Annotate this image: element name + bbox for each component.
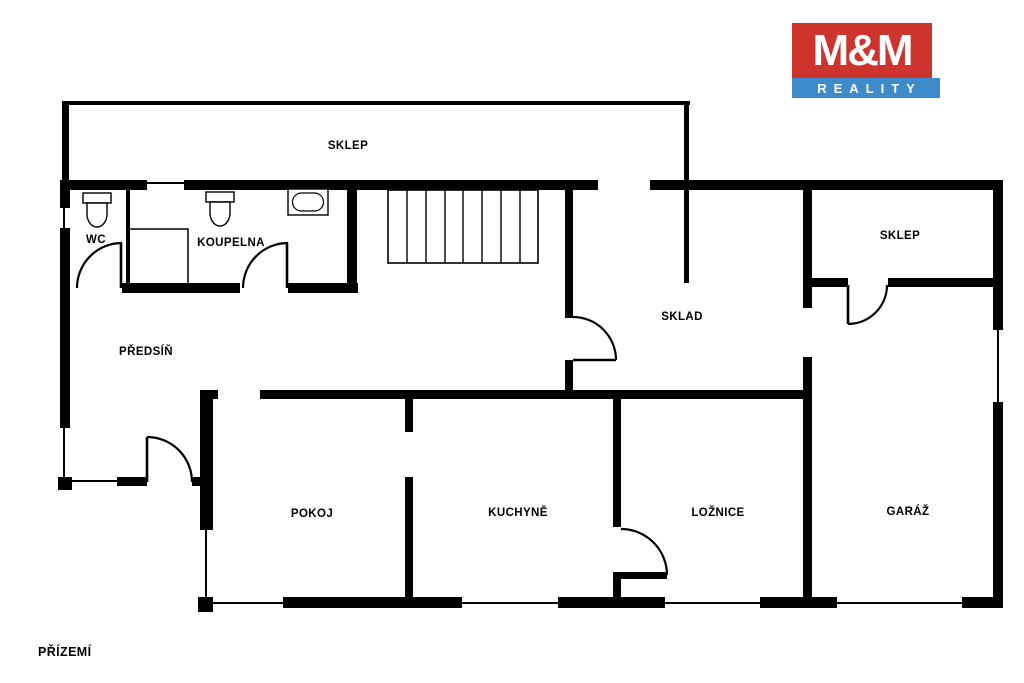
window	[837, 602, 962, 604]
window	[70, 480, 117, 482]
loznice-door-swing-arc	[621, 529, 667, 575]
wall-light	[62, 101, 69, 180]
toilet-icon	[87, 203, 107, 227]
floor-level-label: PŘÍZEMÍ	[38, 645, 92, 659]
predsin-door-swing-arc	[147, 437, 192, 482]
wall	[200, 390, 213, 530]
koupelna-door-swing-arc	[243, 243, 288, 288]
room-label-predsin: PŘEDSÍŇ	[119, 346, 173, 358]
wall	[558, 597, 665, 608]
room-label-pokoj: POKOJ	[291, 508, 333, 520]
room-label-koupelna: KOUPELNA	[197, 237, 265, 249]
wall	[60, 180, 147, 190]
logo-reality-banner: REALITY	[792, 78, 940, 98]
wall	[803, 188, 812, 308]
wall	[613, 572, 667, 579]
room-label-kuchyne: KUCHYNĚ	[488, 507, 548, 519]
wall	[613, 399, 621, 527]
room-label-loznice: LOŽNICE	[691, 507, 744, 519]
window	[205, 530, 207, 597]
window	[63, 428, 65, 477]
wc-door-swing-arc	[77, 243, 122, 288]
shower-square	[129, 229, 188, 284]
wall	[184, 180, 598, 190]
room-label-garaz: GARÁŽ	[887, 506, 930, 518]
window	[665, 602, 760, 604]
wall	[993, 180, 1003, 330]
wall-light	[684, 101, 689, 182]
room-label-sklep-top: SKLEP	[328, 140, 368, 152]
wall	[117, 477, 147, 486]
wall	[283, 597, 462, 608]
logo-mm-banner: M&M	[792, 23, 932, 78]
wall	[260, 390, 803, 399]
wall	[993, 402, 1003, 608]
wall	[198, 597, 213, 612]
window	[63, 208, 65, 228]
window	[213, 602, 283, 604]
floorplan-page: SKLEPWCKOUPELNAPŘEDSÍŇSKLADSKLEPPOKOJKUC…	[0, 0, 1024, 683]
wall	[812, 278, 848, 287]
wall	[650, 180, 1003, 190]
wall	[192, 477, 200, 486]
wall	[565, 360, 573, 391]
sklad-door-swing-arc	[573, 317, 616, 360]
wall-light	[684, 190, 689, 283]
toilet-icon	[206, 192, 234, 202]
wall-light	[62, 101, 690, 105]
window	[997, 330, 999, 402]
wall	[347, 188, 357, 293]
wall	[405, 477, 413, 608]
sklep-right-door-swing-arc	[848, 285, 887, 324]
room-label-sklep-right: SKLEP	[880, 230, 920, 242]
window	[462, 602, 558, 604]
toilet-icon	[210, 202, 230, 226]
floorplan-drawing	[0, 0, 1024, 683]
wall-light	[126, 190, 130, 283]
wall	[122, 283, 240, 293]
window	[147, 182, 184, 184]
wall	[803, 357, 812, 608]
brand-logo: M&M REALITY	[792, 23, 940, 98]
wall	[58, 477, 72, 490]
wall	[405, 399, 413, 432]
wall	[962, 597, 1003, 608]
wall	[60, 228, 70, 428]
wall	[760, 597, 837, 608]
wall	[888, 278, 993, 287]
wall	[60, 180, 70, 208]
wall	[565, 190, 573, 318]
toilet-icon	[83, 193, 111, 203]
room-label-wc: WC	[86, 234, 106, 246]
room-label-sklad: SKLAD	[661, 311, 703, 323]
